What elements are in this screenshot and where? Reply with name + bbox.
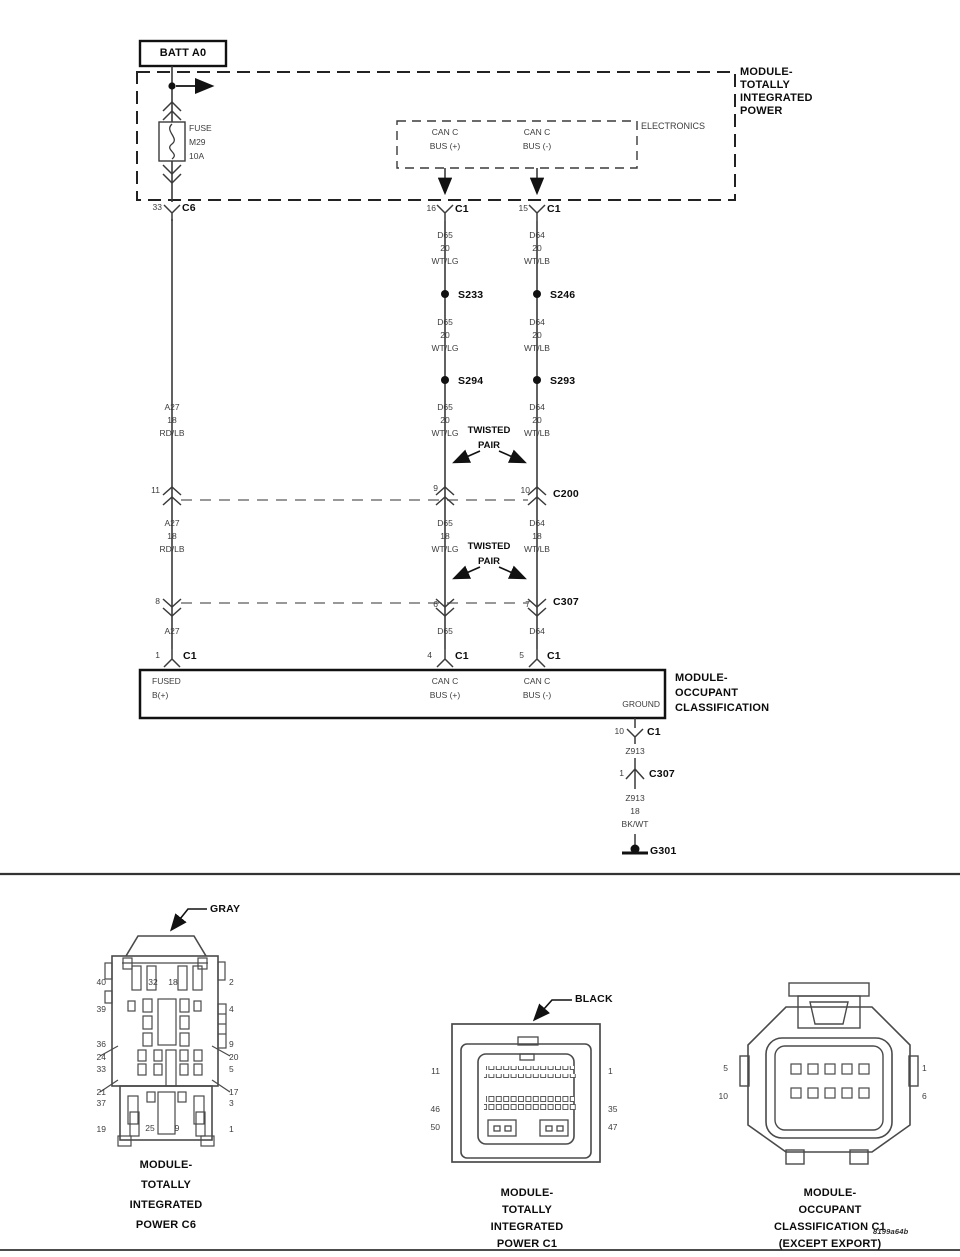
c6-pin-number: 19 — [86, 1124, 106, 1134]
label-line: RD/LB — [132, 543, 212, 556]
splice-s233-dot — [441, 290, 449, 298]
splice-s233-label: S233 — [458, 289, 483, 301]
electronics-label: ELECTRONICS — [641, 121, 705, 131]
label-line: 20 — [405, 242, 485, 255]
c6-pin-number: 4 — [229, 1004, 234, 1014]
c6-inner-pin-number: 9 — [170, 1123, 184, 1133]
label-line: D64 — [497, 401, 577, 414]
can-bus-arrows — [445, 168, 537, 192]
label-line: 18 — [605, 805, 665, 818]
c6-pin-number: 9 — [229, 1039, 234, 1049]
c1-pin-number: 50 — [420, 1122, 440, 1132]
label-line: A27 — [132, 517, 212, 530]
label-line: MODULE- — [745, 1185, 915, 1202]
c6-pin-number: 40 — [86, 977, 106, 987]
pin-number-16: 16 — [420, 203, 436, 213]
c1-pin-number: 46 — [420, 1104, 440, 1114]
label-line: D65 — [405, 625, 485, 638]
label-line: 20 — [405, 329, 485, 342]
connector-ocm-c1-artwork — [740, 983, 918, 1164]
pin-number-8: 8 — [144, 596, 160, 606]
ocm-c1-pin-number: 5 — [708, 1063, 728, 1073]
pin-number-33: 33 — [146, 202, 162, 212]
tipm-module-label: MODULE-TOTALLYINTEGRATEDPOWER — [740, 66, 813, 118]
c6-pin-number: 1 — [229, 1124, 234, 1134]
can-c-bus-minus-label: CAN CBUS (-) — [497, 125, 577, 153]
ocm-port-ground: GROUND — [585, 699, 660, 709]
connector-c1-label: C1 — [455, 650, 469, 662]
pin-number-6: 6 — [422, 599, 438, 609]
wire-label-d64: D64 — [497, 625, 577, 638]
label-line: CAN C — [405, 125, 485, 139]
label-line: TWISTED — [449, 423, 529, 438]
wire-label-a27-18: A2718RD/LB — [132, 517, 212, 556]
c1-pin-number: 11 — [420, 1066, 440, 1076]
label-line: (EXCEPT EXPORT) — [745, 1236, 915, 1253]
wire-label-a27-18: A2718RD/LB — [132, 401, 212, 440]
label-line: WT/LB — [497, 342, 577, 355]
splice-s294-dot — [441, 376, 449, 384]
label-line: TOTALLY — [95, 1175, 237, 1195]
ground-pin-number-1: 1 — [608, 768, 624, 778]
label-line: BUS (-) — [497, 688, 577, 702]
connector-c1-artwork — [452, 1000, 600, 1162]
ocm-port-can-plus: CAN CBUS (+) — [405, 674, 485, 702]
label-line: MODULE- — [740, 66, 813, 79]
connector-c200-label: C200 — [553, 488, 579, 500]
ocm-c1-pin-number: 10 — [708, 1091, 728, 1101]
ocm-port-can-minus: CAN CBUS (-) — [497, 674, 577, 702]
fuse-label: FUSEM2910A — [189, 121, 235, 163]
splice-s246-label: S246 — [550, 289, 575, 301]
ground-g301-label: G301 — [650, 845, 677, 857]
c6-pin-number: 5 — [229, 1064, 234, 1074]
c6-pin-number: 36 — [86, 1039, 106, 1049]
pin-number-5: 5 — [512, 650, 524, 660]
wire-label-d64-20: D6420WT/LB — [497, 316, 577, 355]
label-line: INTEGRATED — [95, 1195, 237, 1215]
gray-label-arrow — [172, 909, 207, 929]
wire-label-z913: Z913 — [605, 745, 665, 758]
connector-c1-label: C1 — [547, 203, 561, 215]
diagram-reference-code: 8199a64b — [873, 1227, 908, 1236]
connector-c1-label: C1 — [455, 203, 469, 215]
black-label-arrow — [535, 1000, 572, 1019]
label-line: WT/LG — [405, 342, 485, 355]
c1-caption: MODULE-TOTALLYINTEGRATEDPOWER C1 — [456, 1185, 598, 1253]
label-line: B(+) — [152, 688, 198, 702]
label-line: TWISTED — [449, 539, 529, 554]
label-line: 10A — [189, 149, 235, 163]
splice-s246-dot — [533, 290, 541, 298]
c1-pin-number: 47 — [608, 1122, 617, 1132]
label-line: CAN C — [497, 125, 577, 139]
splice-s293-label: S293 — [550, 375, 575, 387]
wire-label-d64-20: D6420WT/LB — [497, 229, 577, 268]
pin-number-9: 9 — [422, 483, 438, 493]
ocm-c1-pin-number: 1 — [922, 1063, 927, 1073]
c6-pin-number: 2 — [229, 977, 234, 987]
label-line: FUSED — [152, 674, 198, 688]
wire-label-z913-18: Z91318BK/WT — [605, 792, 665, 831]
ocm-c1-pin-cavities — [791, 1064, 869, 1098]
label-line: D65 — [405, 316, 485, 329]
label-line: BUS (-) — [497, 139, 577, 153]
ocm-module-label: MODULE-OCCUPANTCLASSIFICATION — [675, 671, 769, 716]
label-line: CLASSIFICATION — [675, 701, 769, 716]
battery-feed-label: BATT A0 — [140, 41, 226, 66]
wire-label-a27: A27 — [132, 625, 212, 638]
label-line: MODULE- — [456, 1185, 598, 1202]
c6-pin-number: 17 — [229, 1087, 238, 1097]
c200-inline-connector — [163, 487, 546, 505]
pin-number-4: 4 — [420, 650, 432, 660]
label-line: BK/WT — [605, 818, 665, 831]
label-line: MODULE- — [95, 1155, 237, 1175]
label-line: D64 — [497, 229, 577, 242]
twisted-pair-annotation: TWISTEDPAIR — [449, 423, 529, 453]
label-line: POWER — [740, 105, 813, 118]
c6-pin-number: 20 — [229, 1052, 238, 1062]
pin-number-10: 10 — [514, 485, 530, 495]
connector-c1-label: C1 — [547, 650, 561, 662]
label-line: 20 — [497, 329, 577, 342]
label-line: POWER C6 — [95, 1215, 237, 1235]
label-line: WT/LB — [497, 255, 577, 268]
connector-pin-symbols-bottom — [164, 649, 545, 667]
label-line: Z913 — [605, 792, 665, 805]
g301-ground-symbol — [622, 845, 648, 854]
label-line: OCCUPANT — [675, 686, 769, 701]
label-line: OCCUPANT — [745, 1202, 915, 1219]
c1-pin-number: 35 — [608, 1104, 617, 1114]
label-line: PAIR — [449, 438, 529, 453]
c6-pin-number: 39 — [86, 1004, 106, 1014]
label-line: INTEGRATED — [740, 92, 813, 105]
c6-pin-number: 33 — [86, 1064, 106, 1074]
battery-junction-arrow — [168, 82, 211, 89]
c6-color-label: GRAY — [210, 903, 240, 915]
twisted-pair-annotation: TWISTEDPAIR — [449, 539, 529, 569]
label-line: 18 — [132, 530, 212, 543]
c6-pin-number: 3 — [229, 1098, 234, 1108]
c6-pin-number: 37 — [86, 1098, 106, 1108]
label-line: A27 — [132, 401, 212, 414]
pin-number-7: 7 — [514, 599, 530, 609]
label-line: POWER C1 — [456, 1236, 598, 1253]
ocm-module-box — [140, 670, 665, 718]
label-line: PAIR — [449, 554, 529, 569]
label-line: D64 — [497, 316, 577, 329]
connector-c6-artwork — [100, 909, 230, 1146]
c1-color-label: BLACK — [575, 993, 613, 1005]
label-line: TOTALLY — [456, 1202, 598, 1219]
connector-pin-symbols-top — [164, 205, 545, 221]
label-line: 20 — [497, 242, 577, 255]
c1-pin-number: 1 — [608, 1066, 613, 1076]
c6-inner-pin-number: 32 — [146, 977, 160, 987]
label-line: D65 — [405, 401, 485, 414]
label-line: Z913 — [605, 745, 665, 758]
label-line: FUSE — [189, 121, 235, 135]
ocm-port-fused-b: FUSEDB(+) — [152, 674, 198, 702]
c6-pin-number: 21 — [86, 1087, 106, 1097]
splice-s293-dot — [533, 376, 541, 384]
label-line: 18 — [132, 414, 212, 427]
can-c-bus-plus-label: CAN CBUS (+) — [405, 125, 485, 153]
label-line: D64 — [497, 517, 577, 530]
label-line: BUS (+) — [405, 688, 485, 702]
label-line: CAN C — [405, 674, 485, 688]
connector-c307-label: C307 — [553, 596, 579, 608]
c307-inline-connector — [163, 599, 546, 616]
label-line: D65 — [405, 517, 485, 530]
connector-c1-label: C1 — [647, 726, 661, 738]
label-line: M29 — [189, 135, 235, 149]
c6-caption: MODULE-TOTALLYINTEGRATEDPOWER C6 — [95, 1155, 237, 1235]
label-line: RD/LB — [132, 427, 212, 440]
c6-inner-pin-number: 18 — [166, 977, 180, 987]
label-line: MODULE- — [675, 671, 769, 686]
label-line: BUS (+) — [405, 139, 485, 153]
label-line: A27 — [132, 625, 212, 638]
wire-label-d65-20: D6520WT/LG — [405, 316, 485, 355]
ground-pin-number-10: 10 — [608, 726, 624, 736]
c6-inner-pin-number: 25 — [143, 1123, 157, 1133]
ocm-c1-caption: MODULE-OCCUPANTCLASSIFICATION C1(EXCEPT … — [745, 1185, 915, 1253]
wiring-diagram-page: BATT A0 MODULE-TOTALLYINTEGRATEDPOWER EL… — [0, 0, 960, 1257]
label-line: WT/LG — [405, 255, 485, 268]
label-line: D64 — [497, 625, 577, 638]
connector-c1-label: C1 — [183, 650, 197, 662]
label-line: CAN C — [497, 674, 577, 688]
wire-label-d65: D65 — [405, 625, 485, 638]
fuse-symbol — [159, 122, 185, 161]
splice-s294-label: S294 — [458, 375, 483, 387]
connector-c6-label: C6 — [182, 202, 196, 214]
wire-label-d65-20: D6520WT/LG — [405, 229, 485, 268]
pin-number-1: 1 — [148, 650, 160, 660]
pin-number-15: 15 — [512, 203, 528, 213]
c6-pin-number: 24 — [86, 1052, 106, 1062]
label-line: D65 — [405, 229, 485, 242]
connector-c307-label: C307 — [649, 768, 675, 780]
label-line: TOTALLY — [740, 79, 813, 92]
pin-number-11: 11 — [144, 485, 160, 495]
ocm-c1-pin-number: 6 — [922, 1091, 927, 1101]
label-line: INTEGRATED — [456, 1219, 598, 1236]
